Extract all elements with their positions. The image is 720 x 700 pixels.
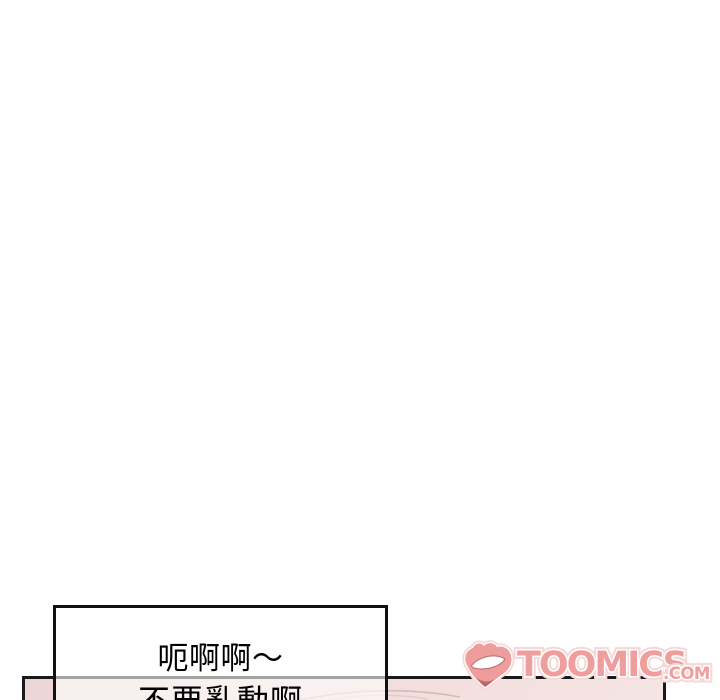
- toomics-watermark: TOOMICS TOOMICS .COM .COM: [458, 638, 718, 690]
- speech-box: 呃啊啊～ 不要亂動啊: [53, 605, 388, 700]
- toomics-wordmark: TOOMICS: [517, 645, 686, 685]
- speech-text: 呃啊啊～ 不要亂動啊: [56, 638, 385, 700]
- toomics-tld: .COM: [663, 664, 710, 683]
- toomics-d-grin-icon: [465, 643, 511, 687]
- speech-line-1: 呃啊啊～: [56, 638, 385, 680]
- comic-page[interactable]: 呃啊啊～ 不要亂動啊 TOOMICS TOOMICS .COM .COM: [0, 0, 720, 700]
- speech-line-2: 不要亂動啊: [56, 680, 385, 700]
